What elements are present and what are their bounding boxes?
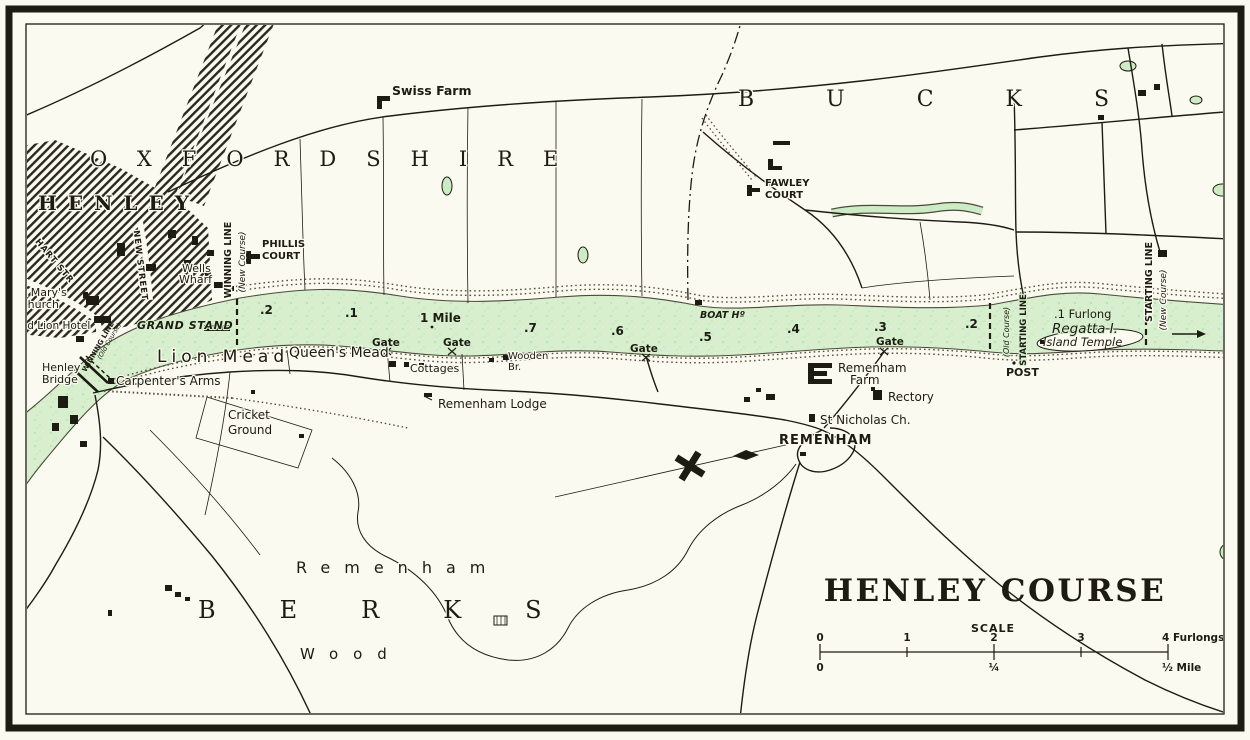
fawley-court-building <box>752 188 760 192</box>
scale-miles-end: ½ Mile <box>1162 662 1201 674</box>
label-gate: Gate <box>630 343 658 355</box>
label-phillis-court-1: PHILLIS <box>262 239 305 250</box>
mile-dot <box>431 326 434 329</box>
scale-furlongs-end: 4 Furlongs <box>1162 632 1224 644</box>
label-fawley-court-2: COURT <box>765 190 803 201</box>
river-marker: 1 Mile <box>420 311 461 325</box>
river-marker: .3 <box>874 320 887 334</box>
building <box>800 452 806 456</box>
building <box>146 264 156 271</box>
scale-tick-label: 0 <box>816 662 823 674</box>
label-new-course: (New Course) <box>238 232 248 293</box>
label-gate: Gate <box>372 337 400 349</box>
label-carpenters-arms: Carpenter's Arms <box>116 374 221 388</box>
label-cricket-ground-1: Cricket <box>228 408 270 422</box>
scale-tick-label: 2 <box>990 632 997 644</box>
label-phillis-court-2: COURT <box>262 251 300 262</box>
building <box>251 390 255 394</box>
map-title: HENLEY COURSE <box>824 573 1167 609</box>
river-marker: .2 <box>965 317 978 331</box>
building <box>299 434 304 438</box>
label-grand-stand: GRAND STAND <box>137 319 233 332</box>
pond <box>1190 96 1202 104</box>
river-marker: .5 <box>699 330 712 344</box>
label-wooden-br-1: Wooden <box>508 351 548 362</box>
building <box>168 230 176 238</box>
river-marker: .4 <box>787 322 800 336</box>
label-henley-bridge-2: Bridge <box>42 373 78 386</box>
building <box>1158 250 1167 257</box>
boat-house-building <box>695 300 702 305</box>
st-nicholas-church-building <box>809 414 815 422</box>
building <box>52 423 59 431</box>
label-new-course-2: (New Course) <box>1159 270 1169 331</box>
label-gate: Gate <box>443 337 471 349</box>
scale-tick-label: ¼ <box>989 662 1000 674</box>
building <box>766 394 775 400</box>
label-lion-mead: Lion Mead <box>157 347 289 367</box>
label-remenham-farm-2: Farm <box>850 373 880 387</box>
scale-tick-label: 1 <box>903 632 910 644</box>
label-wells-wharf-2: Wharf <box>179 273 213 286</box>
building <box>871 387 875 391</box>
building <box>768 166 782 170</box>
cottage <box>404 362 409 367</box>
label-fawley-court-1: FAWLEY <box>765 178 810 189</box>
label-cottages: Cottages <box>410 362 460 375</box>
building <box>192 236 198 245</box>
building <box>773 141 790 145</box>
town-label-henley: HENLEY <box>38 191 200 215</box>
label-winning-line-new: WINNING LINE <box>223 222 234 299</box>
river-marker: .2 <box>260 303 273 317</box>
building <box>80 441 87 447</box>
label-island-temple: Island Temple <box>1043 335 1122 349</box>
label-rectory: Rectory <box>888 390 934 404</box>
county-label-bucks: BUCKS <box>738 87 1181 112</box>
label-swiss-farm: Swiss Farm <box>392 83 472 98</box>
fawley-court-building <box>747 185 752 196</box>
phillis-court-building <box>251 254 260 259</box>
map-page: OXFORDSHIRE BUCKS BERKS HENLEY REMENHAM … <box>0 0 1250 740</box>
cottage <box>389 361 396 367</box>
rectory-building <box>873 390 882 400</box>
label-gate: Gate <box>876 336 904 348</box>
building <box>117 243 125 256</box>
pond <box>578 247 588 263</box>
building <box>70 415 78 424</box>
label-st-nicholas: St Nicholas Ch. <box>820 413 911 427</box>
label-wooden-br-2: Br. <box>508 362 521 373</box>
building <box>744 397 750 402</box>
label-old-course-2: (Old Course) <box>1002 307 1011 357</box>
carpenters-arms-building <box>108 378 114 384</box>
scale-tick-label: 3 <box>1077 632 1084 644</box>
pond <box>442 177 452 195</box>
building <box>185 597 190 601</box>
cottage <box>489 358 494 362</box>
wood-label-2: Wood <box>300 645 402 663</box>
label-boat-house: BOAT Hº <box>700 310 745 321</box>
label-post: POST <box>1006 366 1039 379</box>
label-cricket-ground-2: Ground <box>228 423 272 437</box>
post-mark <box>1012 361 1015 364</box>
label-furlong: .1 Furlong <box>1054 307 1111 321</box>
label-starting-line-new: STARTING LINE <box>1144 242 1155 322</box>
building <box>108 610 112 616</box>
swiss-farm-building <box>377 96 390 101</box>
river-marker: .1 <box>345 306 358 320</box>
scale-tick-label: 0 <box>816 632 823 644</box>
building <box>175 592 181 597</box>
wood-label-1: Remenham <box>296 558 499 577</box>
label-starting-line-old: STARTING LINE <box>1019 294 1029 366</box>
county-label-oxfordshire: OXFORDSHIRE <box>90 147 588 171</box>
building <box>207 250 214 256</box>
henley-course-map: OXFORDSHIRE BUCKS BERKS HENLEY REMENHAM … <box>0 0 1250 740</box>
river-marker: .7 <box>524 321 537 335</box>
river-marker: .6 <box>611 324 624 338</box>
church-tower <box>83 292 88 298</box>
county-label-berks: BERKS <box>198 596 606 624</box>
village-label-remenham: REMENHAM <box>779 433 872 448</box>
building <box>76 336 84 342</box>
building <box>1098 115 1104 120</box>
building <box>58 396 68 408</box>
label-remenham-lodge: Remenham Lodge <box>438 397 547 411</box>
building <box>756 388 761 392</box>
building <box>165 585 172 591</box>
pond <box>1120 61 1136 71</box>
